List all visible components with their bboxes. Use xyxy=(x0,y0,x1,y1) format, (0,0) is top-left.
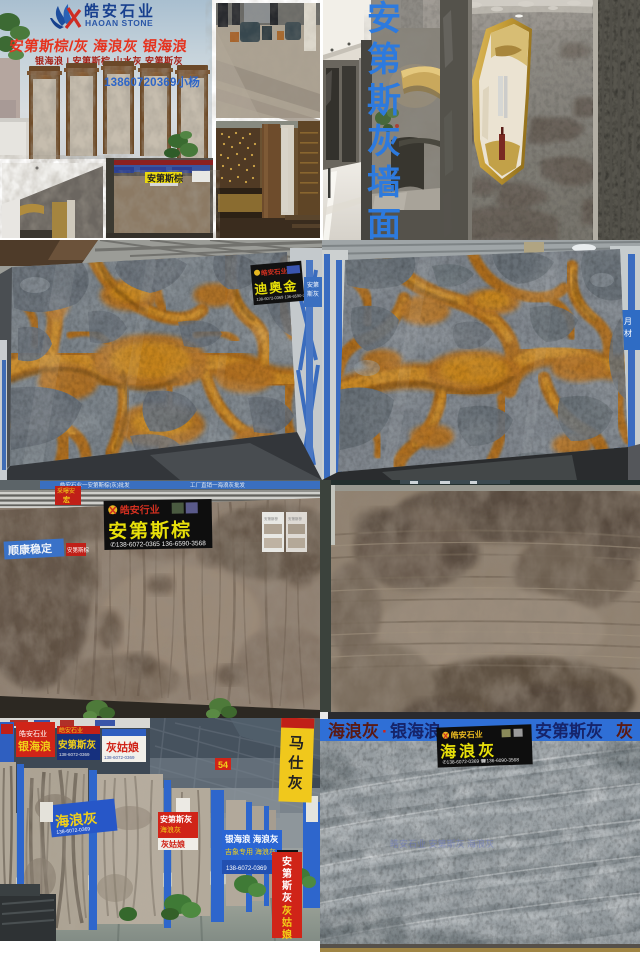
svg-text:吉象专用 海浪灰: 吉象专用 海浪灰 xyxy=(225,847,276,856)
svg-text:安第斯灰: 安第斯灰 xyxy=(58,739,97,751)
svg-text:安第斯棕: 安第斯棕 xyxy=(108,518,192,542)
svg-text:安第斯灰: 安第斯灰 xyxy=(160,814,192,824)
svg-text:第: 第 xyxy=(282,867,292,880)
svg-text:灰: 灰 xyxy=(367,123,401,161)
svg-text:采曝安: 采曝安 xyxy=(57,487,75,495)
svg-text:安第斯棕: 安第斯棕 xyxy=(264,516,278,521)
svg-text:银海浪: 银海浪 xyxy=(18,739,51,753)
svg-text:灰姑娘: 灰姑娘 xyxy=(106,740,139,754)
svg-text:皓安行业: 皓安行业 xyxy=(120,503,160,517)
svg-text:海浪灰: 海浪灰 xyxy=(160,825,181,834)
svg-text:灰: 灰 xyxy=(282,891,292,904)
svg-text:皓安石业 安第斯灰 海浪灰: 皓安石业 安第斯灰 海浪灰 xyxy=(390,838,494,849)
svg-text:安第斯棕/灰 海浪灰 银海浪: 安第斯棕/灰 海浪灰 银海浪 xyxy=(8,37,188,55)
svg-text:墙: 墙 xyxy=(367,164,401,202)
svg-text:银海浪: 银海浪 xyxy=(390,721,441,741)
svg-text:安第斯棕: 安第斯棕 xyxy=(67,546,90,554)
svg-text:HAOAN STONE: HAOAN STONE xyxy=(85,18,153,28)
svg-text:安第: 安第 xyxy=(307,281,319,289)
svg-text:灰姑娘: 灰姑娘 xyxy=(161,839,186,849)
svg-text:·: · xyxy=(382,722,388,741)
svg-text:13860720369小杨: 13860720369小杨 xyxy=(104,75,200,89)
svg-text:皓安石业: 皓安石业 xyxy=(19,729,47,738)
svg-text:138-6072-0369: 138-6072-0369 xyxy=(226,866,267,872)
svg-text:138-6072-0369: 138-6072-0369 xyxy=(59,752,90,757)
svg-text:✆138-6072-0365 136-6590-3568: ✆138-6072-0365 136-6590-3568 xyxy=(110,539,206,549)
svg-text:第: 第 xyxy=(367,41,401,79)
svg-text:海浪灰: 海浪灰 xyxy=(328,721,379,741)
svg-text:灰: 灰 xyxy=(287,774,303,793)
svg-text:灰: 灰 xyxy=(616,721,633,741)
svg-text:娘: 娘 xyxy=(282,928,292,941)
svg-text:工厂直销一海浪灰批发: 工厂直销一海浪灰批发 xyxy=(190,481,246,489)
svg-text:灰: 灰 xyxy=(282,904,292,917)
svg-text:斯灰: 斯灰 xyxy=(307,290,319,298)
svg-text:马: 马 xyxy=(289,735,305,753)
svg-text:54: 54 xyxy=(218,760,228,770)
svg-text:斯: 斯 xyxy=(282,879,292,892)
svg-text:安第斯灰: 安第斯灰 xyxy=(535,721,603,741)
svg-text:安: 安 xyxy=(282,855,292,868)
svg-text:面: 面 xyxy=(367,206,401,240)
svg-text:安: 安 xyxy=(367,0,401,38)
svg-text:宏: 宏 xyxy=(63,495,70,504)
svg-text:138-6072-0369: 138-6072-0369 xyxy=(104,755,135,760)
svg-text:皓安石业: 皓安石业 xyxy=(59,727,83,735)
svg-text:斯: 斯 xyxy=(367,82,401,120)
svg-text:仕: 仕 xyxy=(287,754,304,773)
svg-text:银海浪 海浪灰: 银海浪 海浪灰 xyxy=(224,834,279,844)
svg-text:皓安石业: 皓安石业 xyxy=(450,729,482,740)
svg-text:姑: 姑 xyxy=(281,916,292,929)
svg-text:安第斯棕: 安第斯棕 xyxy=(288,516,302,521)
svg-text:安第斯棕: 安第斯棕 xyxy=(147,173,183,184)
